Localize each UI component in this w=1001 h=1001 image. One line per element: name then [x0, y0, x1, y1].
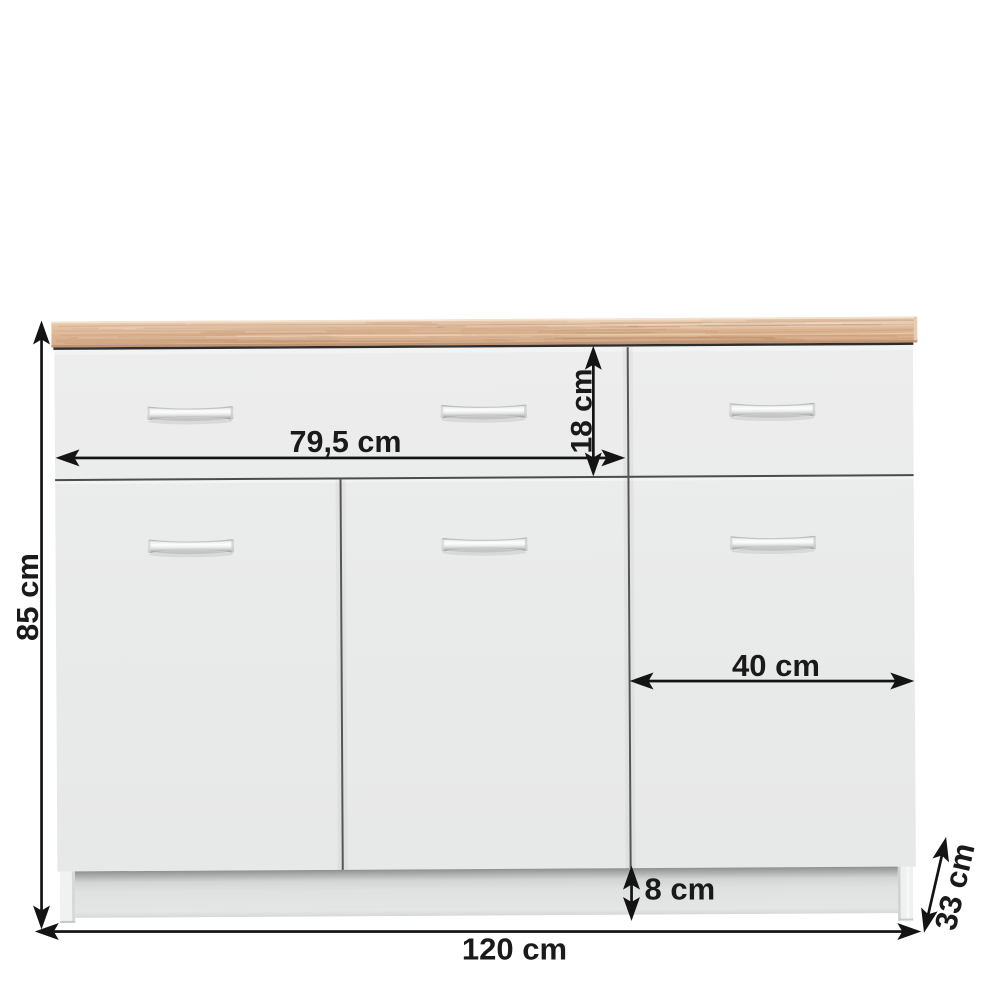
svg-text:120 cm: 120 cm [462, 932, 567, 967]
svg-text:18 cm: 18 cm [565, 368, 598, 453]
svg-text:8 cm: 8 cm [645, 872, 716, 907]
svg-text:40 cm: 40 cm [732, 648, 820, 683]
svg-text:79,5 cm: 79,5 cm [290, 425, 402, 459]
svg-text:85 cm: 85 cm [10, 553, 45, 641]
